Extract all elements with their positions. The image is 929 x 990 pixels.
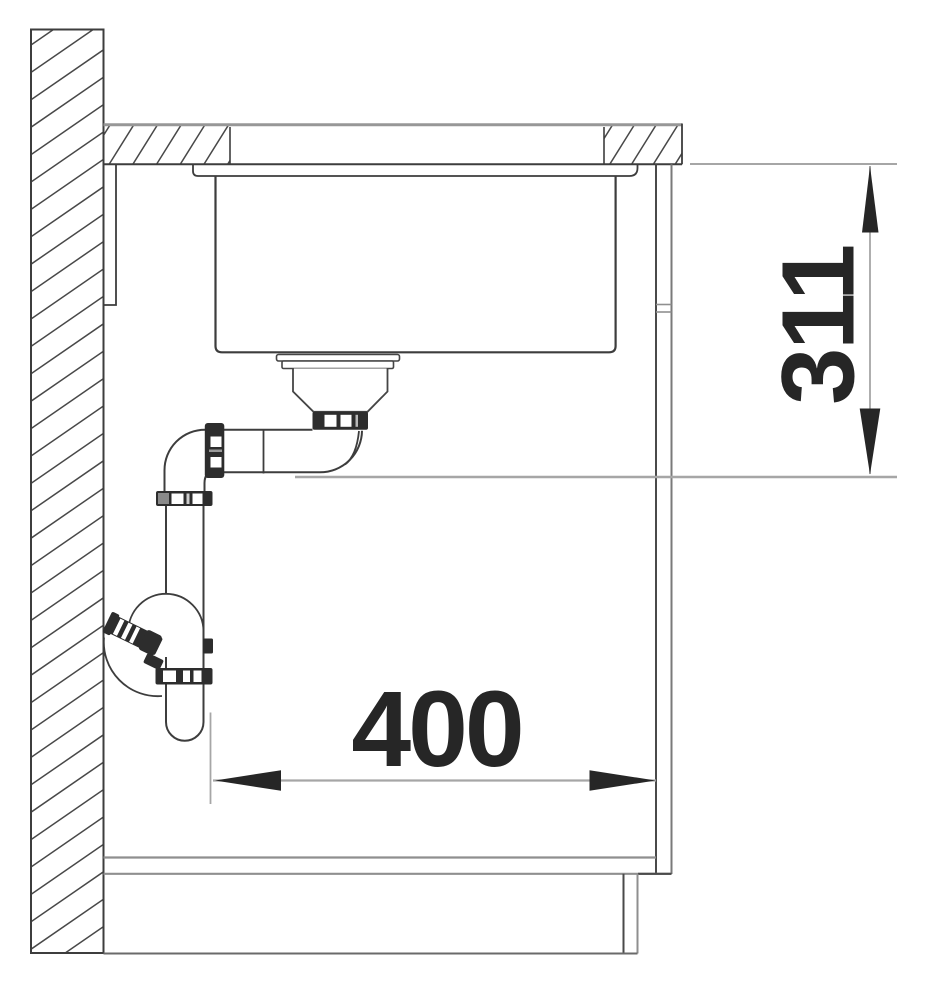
svg-text:311: 311 — [761, 246, 876, 405]
svg-text:400: 400 — [351, 669, 521, 789]
